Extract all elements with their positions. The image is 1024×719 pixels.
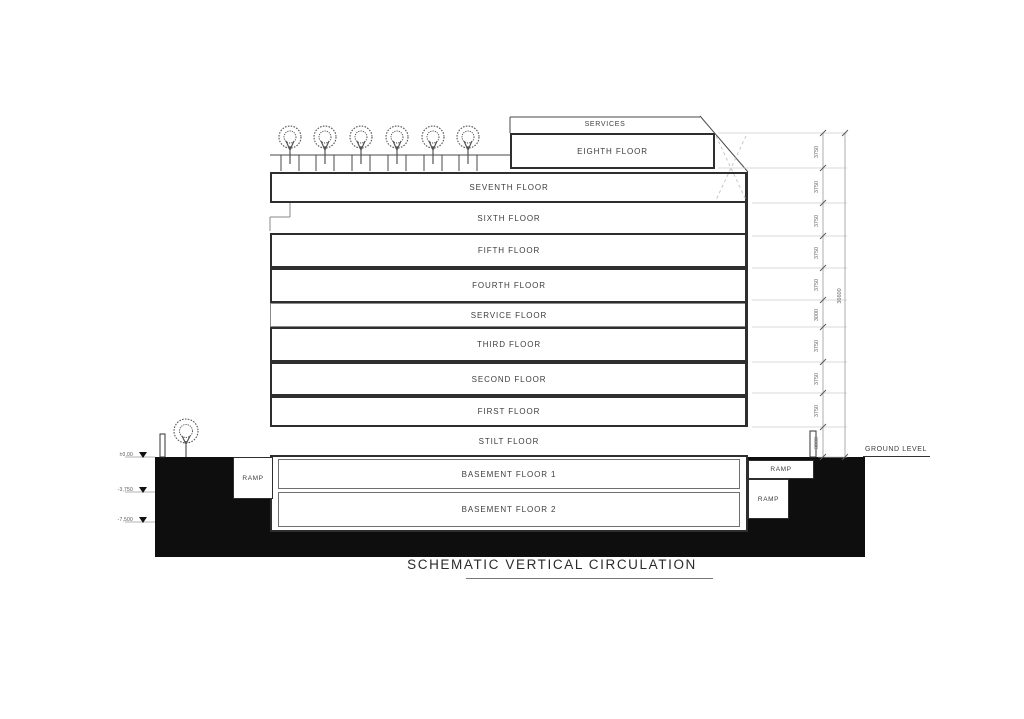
ground-level-label: GROUND LEVEL — [858, 446, 934, 453]
floor-third: THIRD FLOOR — [270, 327, 748, 362]
dim-label: 3750 — [814, 215, 820, 227]
ground-level-line — [863, 456, 930, 457]
tree-icon — [457, 126, 479, 164]
floor-label-first: FIRST FLOOR — [478, 407, 541, 416]
floor-label-fifth: FIFTH FLOOR — [478, 246, 540, 255]
dim-label: 3000 — [814, 309, 820, 321]
ramp-right-lower: RAMP — [748, 479, 789, 519]
floor-label-basement-1: BASEMENT FLOOR 1 — [462, 470, 557, 479]
dim-label: 3750 — [814, 279, 820, 291]
dim-label: 3750 — [814, 340, 820, 352]
floor-label-basement-2: BASEMENT FLOOR 2 — [462, 505, 557, 514]
ramp-right-lower-label: RAMP — [758, 496, 779, 503]
floor-service: SERVICE FLOOR — [270, 303, 748, 327]
dimension-chain: 3750 3750 3750 3750 3750 3000 3750 3750 … — [814, 130, 826, 460]
dim-label: 3750 — [814, 146, 820, 158]
schematic-section-drawing: BASEMENT FLOOR 1 BASEMENT FLOOR 2 RAMP R… — [0, 0, 1024, 719]
floor-label-service: SERVICE FLOOR — [471, 311, 547, 320]
left-post — [160, 434, 165, 457]
ground-tree-icon — [174, 419, 198, 457]
floor-basement-1: BASEMENT FLOOR 1 — [278, 459, 740, 489]
tree-icon — [279, 126, 301, 164]
floor-fifth: FIFTH FLOOR — [270, 233, 748, 268]
dim-label: 3750 — [814, 405, 820, 417]
overall-dimension: 36600 — [837, 130, 848, 460]
floor-label-stilt: STILT FLOOR — [479, 437, 540, 446]
dim-label: 3750 — [814, 373, 820, 385]
tree-icon — [350, 126, 372, 164]
floor-label-eighth: EIGHTH FLOOR — [577, 147, 648, 156]
title-underline — [466, 578, 713, 579]
tree-icon — [386, 126, 408, 164]
roof-trees-icon — [279, 126, 479, 164]
floor-fourth: FOURTH FLOOR — [270, 268, 748, 303]
floor-sixth: SIXTH FLOOR — [270, 203, 748, 233]
dim-label: 3750 — [814, 181, 820, 193]
tree-icon — [422, 126, 444, 164]
floor-label-second: SECOND FLOOR — [472, 375, 547, 384]
dim-overall-label: 36600 — [837, 288, 843, 303]
building-right-edge — [745, 172, 748, 427]
dim-label: 3000 — [814, 437, 820, 449]
dim-label: 3750 — [814, 247, 820, 259]
services-strip: SERVICES — [510, 116, 700, 132]
ramp-left-label: RAMP — [242, 475, 263, 482]
terrace-planter — [270, 155, 510, 171]
floor-eighth: EIGHTH FLOOR — [510, 133, 715, 169]
floor-label-seventh: SEVENTH FLOOR — [469, 183, 548, 192]
floor-seventh: SEVENTH FLOOR — [270, 172, 748, 203]
floor-first: FIRST FLOOR — [270, 396, 748, 427]
floor-basement-2: BASEMENT FLOOR 2 — [278, 492, 740, 527]
floor-label-fourth: FOURTH FLOOR — [472, 281, 546, 290]
level-text-1: -3,750 — [101, 487, 133, 493]
right-post — [810, 431, 816, 457]
ramp-left: RAMP — [233, 457, 273, 499]
ramp-right-upper-label: RAMP — [770, 466, 791, 473]
ramp-right-upper: RAMP — [748, 460, 814, 479]
level-marker-icon — [139, 517, 147, 523]
level-marker-icon — [139, 487, 147, 493]
level-marker-icon — [139, 452, 147, 458]
floor-stilt: STILT FLOOR — [270, 428, 748, 454]
level-text-0: ±0.00 — [101, 452, 133, 458]
level-text-2: -7,500 — [101, 517, 133, 523]
floor-second: SECOND FLOOR — [270, 362, 748, 396]
drawing-title: SCHEMATIC VERTICAL CIRCULATION — [332, 557, 772, 572]
services-label: SERVICES — [585, 121, 626, 128]
floor-label-third: THIRD FLOOR — [477, 340, 541, 349]
tree-icon — [314, 126, 336, 164]
floor-label-sixth: SIXTH FLOOR — [477, 214, 540, 223]
